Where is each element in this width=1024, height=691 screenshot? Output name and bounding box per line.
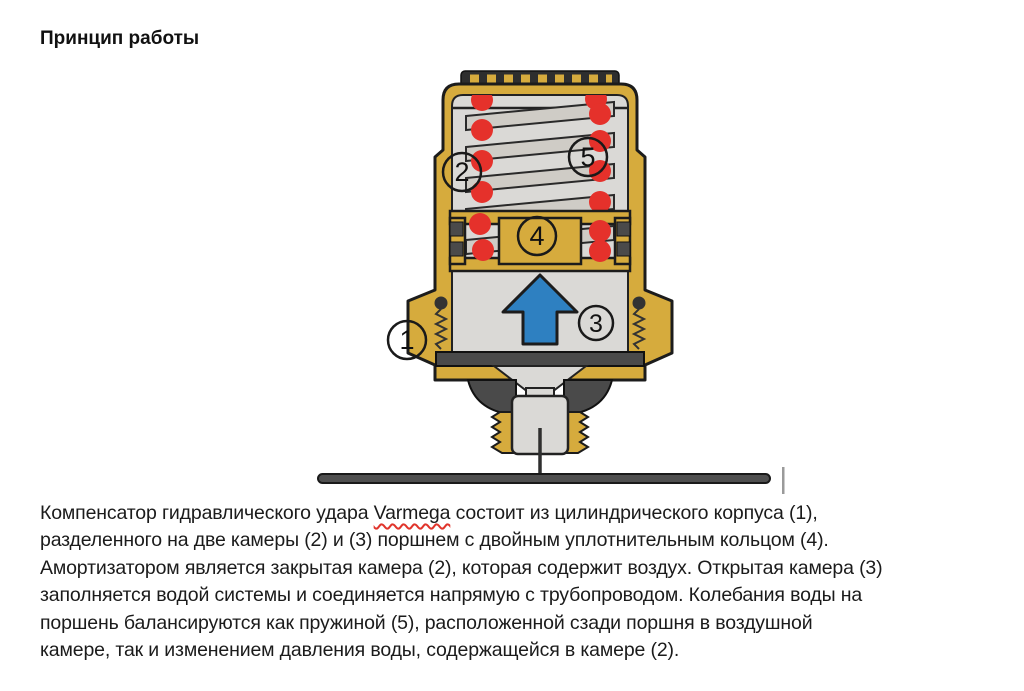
paragraph-line: поршень балансируются как пружиной (5), … xyxy=(40,610,1005,637)
o-ring xyxy=(471,150,493,172)
svg-text:1: 1 xyxy=(399,325,414,355)
piston-seal xyxy=(617,222,630,236)
paragraph-line: камере, так и изменением давления воды, … xyxy=(40,637,1005,664)
shoulder-right xyxy=(564,380,612,415)
paragraph-line: разделенного на две камеры (2) и (3) пор… xyxy=(40,527,1005,554)
thread-right xyxy=(566,412,588,453)
o-ring xyxy=(589,240,611,262)
o-ring xyxy=(469,213,491,235)
cursor-mark xyxy=(782,467,785,494)
piston-seal xyxy=(617,242,630,256)
o-ring xyxy=(589,103,611,125)
paragraph-line: заполняется водой системы и соединяется … xyxy=(40,582,1005,609)
base-seal-bar xyxy=(436,352,644,366)
document-page: Принцип работы xyxy=(0,0,1024,691)
o-ring xyxy=(471,181,493,203)
paragraph-line: Компенсатор гидравлического удара Varmeg… xyxy=(40,500,1005,527)
thread-left xyxy=(492,412,514,453)
o-ring xyxy=(589,191,611,213)
pipe xyxy=(318,474,770,483)
paragraph-text: Компенсатор гидравлического удара xyxy=(40,502,374,524)
paragraph-line: Амортизатором является закрытая камера (… xyxy=(40,555,1005,582)
o-ring xyxy=(471,119,493,141)
piston-seal xyxy=(450,222,463,236)
paragraph-text: состоит из цилиндрического корпуса (1), xyxy=(450,502,817,524)
o-ring xyxy=(472,239,494,261)
svg-text:2: 2 xyxy=(454,157,469,187)
body-paragraph: Компенсатор гидравлического удара Varmeg… xyxy=(40,500,1005,664)
bottom-connector xyxy=(468,366,612,477)
shoulder-left xyxy=(468,380,516,415)
piston-seal xyxy=(450,242,463,256)
svg-text:3: 3 xyxy=(589,310,603,338)
misspelled-word: Varmega xyxy=(374,502,451,524)
svg-text:5: 5 xyxy=(580,142,595,172)
o-ring xyxy=(589,220,611,242)
svg-text:4: 4 xyxy=(529,221,544,251)
